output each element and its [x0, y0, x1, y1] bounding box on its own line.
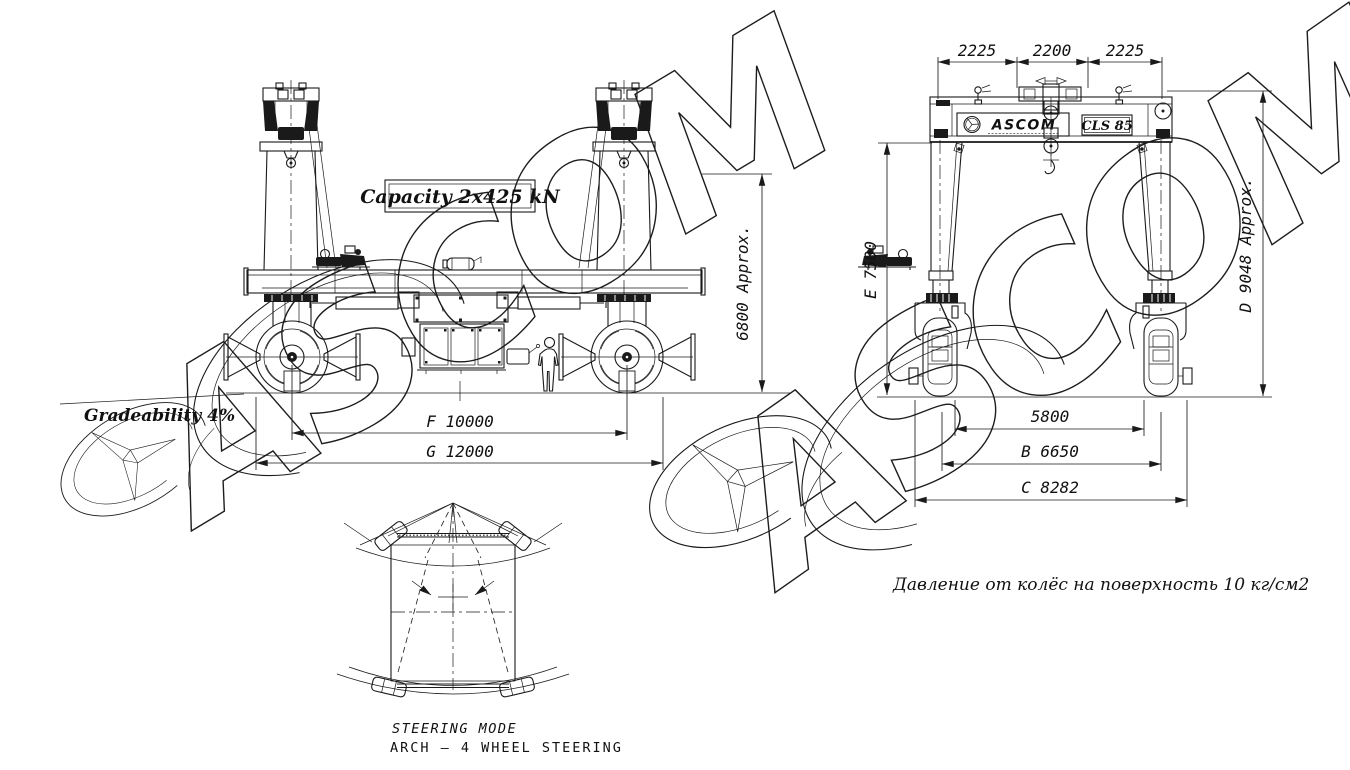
- trolley: [1019, 78, 1081, 115]
- wheel-pressure-note: Давление от колёс на поверхность 10 кг/с…: [892, 575, 1309, 595]
- dim-top-right-label: 2225: [1106, 41, 1145, 60]
- steering-diagram: STEERING MODE ARCH – 4 WHEEL STEERING: [337, 503, 623, 756]
- gradeability-label: Gradeability 4%: [84, 406, 235, 426]
- steering-mode-value: ARCH – 4 WHEEL STEERING: [390, 740, 623, 756]
- dim-top-spans: 2225 2200 2225: [938, 41, 1162, 99]
- travel-arrow-icon: [1036, 78, 1045, 85]
- light-post-right: [1116, 85, 1132, 104]
- ascom-logo-plate: ASCOM: [957, 113, 1069, 136]
- dim-clear-height-label: E 7500: [861, 241, 880, 299]
- dim-top-center-label: 2200: [1033, 41, 1072, 60]
- dim-overall-width-label: C 8282: [1021, 478, 1079, 497]
- dim-inner-span-label: 5800: [1031, 407, 1070, 426]
- dim-wheelbase-label: F 10000: [426, 412, 493, 431]
- steering-mode-title: STEERING MODE: [392, 721, 517, 737]
- model-label: CLS 85: [1081, 119, 1133, 134]
- dim-height-label: 6800 Approx.: [733, 225, 752, 341]
- technical-drawing: ASCOM ASCOM: [0, 0, 1350, 770]
- dim-length-label: G 12000: [426, 442, 493, 461]
- light-post-left: [975, 85, 991, 104]
- travel-arrow-icon: [1057, 78, 1066, 85]
- dim-overall-height-label: D 9048 Approx.: [1236, 178, 1255, 314]
- drawing-page: ASCOM ASCOM: [0, 0, 1350, 770]
- dim-top-left-label: 2225: [958, 41, 997, 60]
- dim-track-label: B 6650: [1021, 442, 1079, 461]
- capacity-label: Capacity 2x425 kN: [360, 186, 560, 208]
- brand-label: ASCOM: [991, 118, 1057, 134]
